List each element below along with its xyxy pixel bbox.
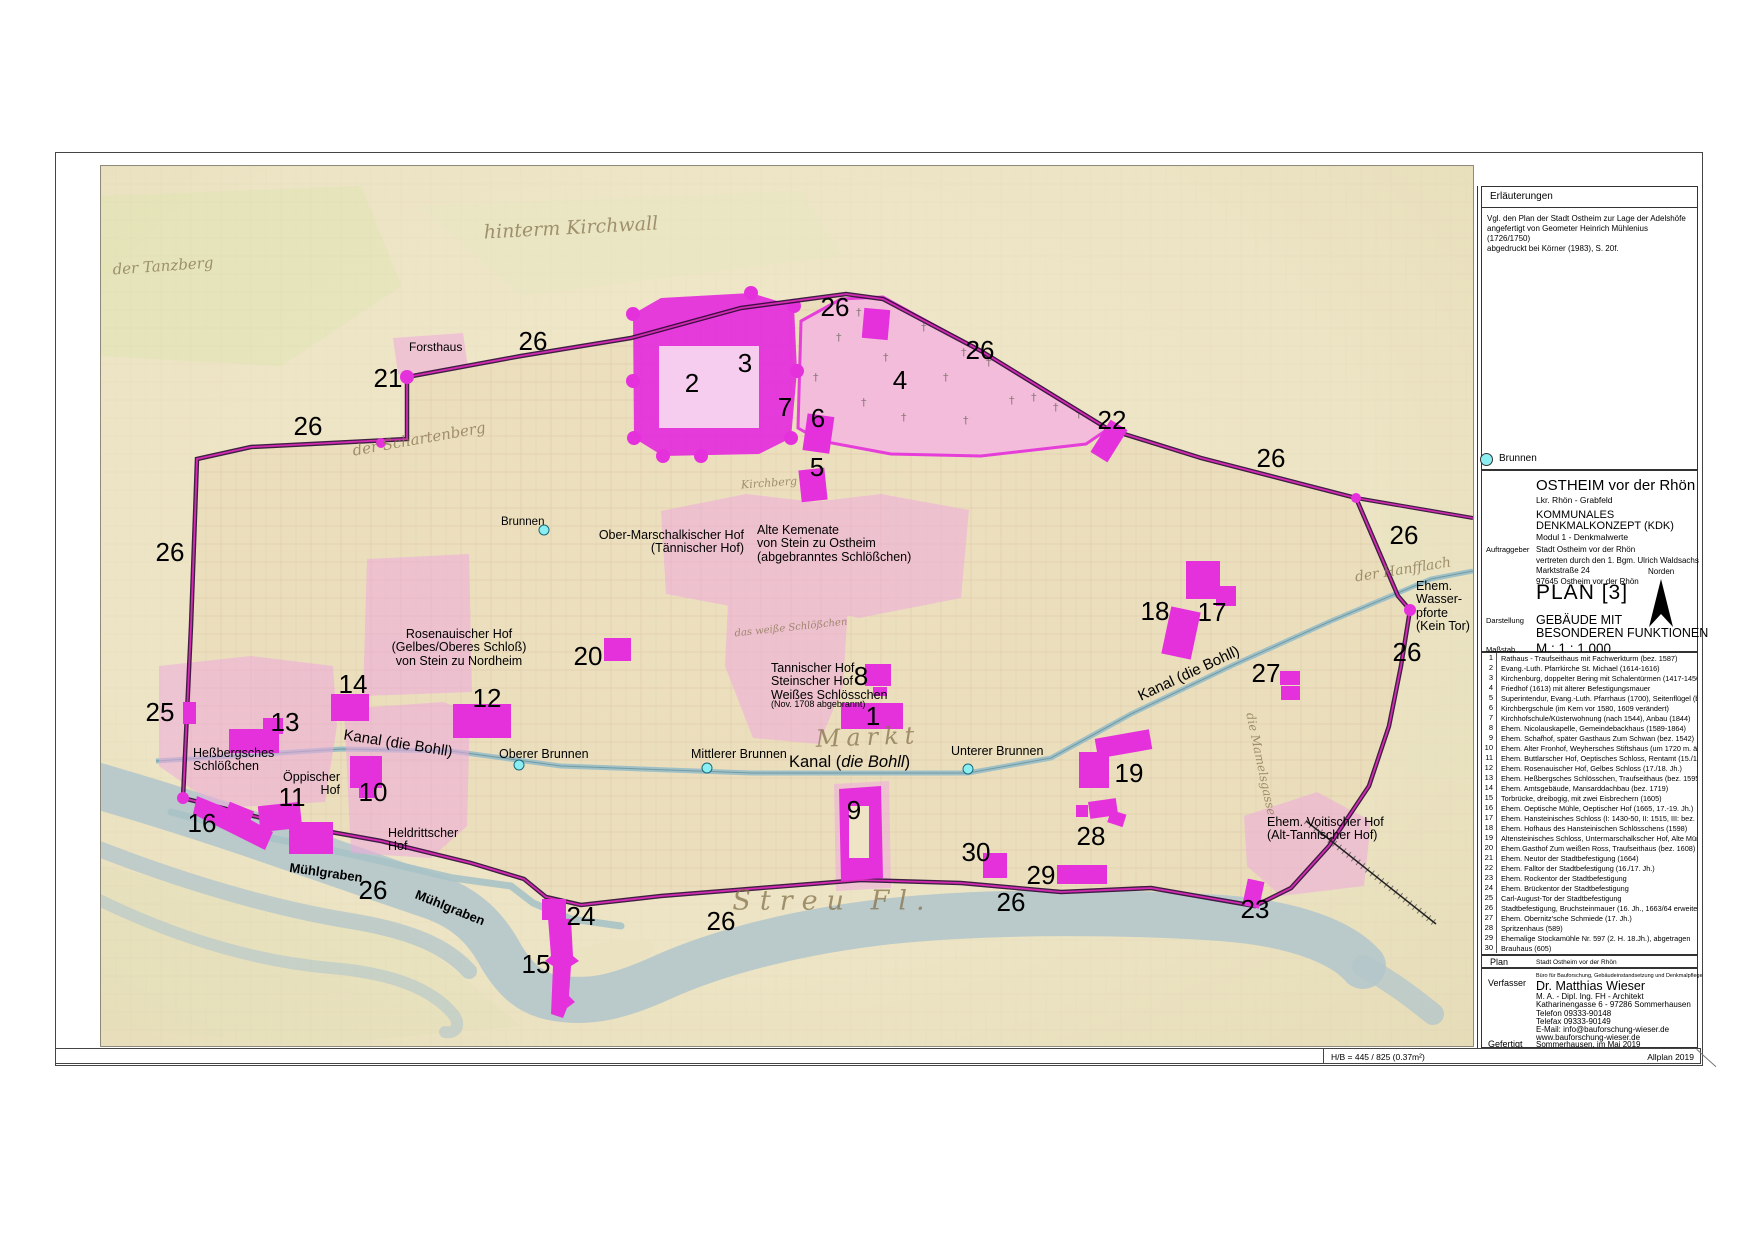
legend-text: Altensteinisches Schloss, Untermarschalk… — [1497, 834, 1698, 843]
legend-number: 17 — [1482, 813, 1497, 823]
hb-note: H/B = 445 / 825 (0.37m²) — [1331, 1052, 1425, 1062]
label-line: Oberer Brunnen — [499, 748, 589, 761]
verfasser-label: Verfasser — [1488, 978, 1526, 988]
legend-text: Ehem. Oeptische Mühle, Oeptischer Hof (1… — [1497, 804, 1693, 813]
bar-divider — [1323, 1049, 1324, 1063]
map-text-label: Ober-Marschalkischer Hof(Tännischer Hof) — [599, 529, 744, 556]
label-line: Heldrittscher — [388, 827, 458, 840]
legend-row: 2Evang.-Luth. Pfarrkirche St. Michael (1… — [1482, 663, 1697, 673]
legend-text: Evang.-Luth. Pfarrkirche St. Michael (16… — [1497, 664, 1660, 673]
label-line: (Alt-Tannischer Hof) — [1267, 829, 1384, 842]
label-line: Mühlgraben — [413, 888, 486, 928]
legend-row: 26Stadtbefestigung, Bruchsteinmauer (16.… — [1482, 903, 1697, 913]
label-segment: Kanal ( — [789, 753, 841, 771]
label-line: pforte — [1416, 607, 1470, 620]
old-script-label: die Mamelsgasse — [1243, 711, 1278, 816]
label-line: (Gelbes/Oberes Schloß) — [392, 641, 527, 654]
map-number-label: 3 — [738, 350, 752, 376]
north-arrow-icon — [1646, 577, 1676, 631]
brunnen-label: Brunnen — [1499, 453, 1537, 464]
darstellung-line1: GEBÄUDE MIT — [1536, 613, 1622, 627]
legend-row: 5Superintendur, Evang.-Luth. Pfarrhaus (… — [1482, 693, 1697, 703]
legend-text: Superintendur, Evang.-Luth. Pfarrhaus (1… — [1497, 694, 1698, 703]
historic-map: ††††††††††††††† — [100, 165, 1474, 1047]
legend-number: 28 — [1482, 923, 1497, 933]
map-number-label: 6 — [811, 405, 825, 431]
legend-number: 10 — [1482, 743, 1497, 753]
legend-row: 12Ehem. Rosenauischer Hof, Gelbes Schlos… — [1482, 763, 1697, 773]
verfasser-lines: M. A. - Dipl. Ing. FH - ArchitektKathari… — [1536, 993, 1691, 1043]
label-line: Brunnen — [501, 516, 544, 528]
legend-row: 4Friedhof (1613) mit älterer Befestigung… — [1482, 683, 1697, 693]
map-number-label: 7 — [778, 394, 792, 420]
label-line: Mittlerer Brunnen — [691, 748, 787, 761]
map-number-label: 5 — [810, 454, 824, 480]
map-number-label: 17 — [1198, 599, 1227, 625]
map-text-label: Ehem.Wasser-pforte(Kein Tor) — [1416, 580, 1470, 633]
text-line: abgedruckt bei Körner (1983), S. 20f. — [1487, 244, 1692, 254]
map-number-label: 12 — [473, 685, 502, 711]
old-script-label: Kirchberg — [741, 475, 798, 492]
legend-number: 29 — [1482, 933, 1497, 943]
legend-number: 30 — [1482, 943, 1497, 953]
label-line: (Tännischer Hof) — [599, 542, 744, 555]
label-segment: die Bohll — [841, 753, 904, 771]
label-line: Alte Kemenate — [757, 524, 911, 537]
legend-row: 25Carl-August-Tor der Stadtbefestigung — [1482, 893, 1697, 903]
legend-text: Ehem. Falltor der Stadtbefestigung (16./… — [1497, 864, 1655, 873]
legend-number: 4 — [1482, 683, 1497, 693]
old-script-label: hinterm Kirchwall — [483, 212, 658, 243]
map-number-label: 16 — [188, 810, 217, 836]
map-number-label: 18 — [1141, 598, 1170, 624]
map-number-label: 25 — [146, 699, 175, 725]
map-number-label: 4 — [893, 367, 907, 393]
legend-number: 23 — [1482, 873, 1497, 883]
legend-row: 15Torbrücke, dreibogig, mit zwei Eisbrec… — [1482, 793, 1697, 803]
label-line: Mühlgraben — [289, 861, 364, 885]
legend-row: 14Ehem. Amtsgebäude, Mansarddachbau (bez… — [1482, 783, 1697, 793]
label-line: Schlößchen — [193, 760, 274, 773]
legend-text: Ehem. Schafhof, später Gasthaus Zum Schw… — [1497, 734, 1694, 743]
legend-text: Ehem. Nicolauskapelle, Gemeindebackhaus … — [1497, 724, 1686, 733]
label-line: Kanal (die Bohll) — [1136, 643, 1242, 704]
norden-label: Norden — [1648, 567, 1674, 576]
legend-number: 6 — [1482, 703, 1497, 713]
label-line: (abgebranntes Schlößchen) — [757, 551, 911, 564]
well-icon — [702, 763, 713, 774]
plan-sheet: ††††††††††††††† — [0, 0, 1755, 1240]
legend-text: Ehem. Hofhaus des Hansteinischen Schlöss… — [1497, 824, 1687, 833]
legend-row: 19Altensteinisches Schloss, Untermarscha… — [1482, 833, 1697, 843]
map-text-label: Rosenauischer Hof(Gelbes/Oberes Schloß)v… — [392, 628, 527, 668]
map-number-label: 26 — [1257, 445, 1286, 471]
plan-row-value: Stadt Ostheim vor der Rhön — [1536, 959, 1617, 966]
legend-text: Ehemalige Stockamühle Nr. 597 (2. H. 18.… — [1497, 934, 1690, 943]
city-title: OSTHEIM vor der Rhön — [1536, 477, 1695, 494]
legend-text: Kirchenburg, doppelter Bering mit Schale… — [1497, 674, 1698, 683]
darstellung-label: Darstellung — [1486, 616, 1524, 625]
map-text-label: Unterer Brunnen — [951, 745, 1043, 758]
label-line: Heßbergsches — [193, 747, 274, 760]
legend-number: 5 — [1482, 693, 1497, 703]
map-number-label: 28 — [1077, 823, 1106, 849]
legend-text: Ehem. Alter Fronhof, Weyhersches Stiftsh… — [1497, 744, 1698, 753]
legend-text: Ehem. Hansteinisches Schloss (I: 1430-50… — [1497, 814, 1698, 823]
verfasser-block: Verfasser Büro für Bauforschung, Gebäude… — [1481, 968, 1698, 1048]
map-text-label: HeldrittscherHof — [388, 827, 458, 854]
map-number-label: 24 — [567, 903, 596, 929]
map-text-label: Mittlerer Brunnen — [691, 748, 787, 761]
map-number-label: 20 — [574, 643, 603, 669]
text-line: vertreten durch den 1. Bgm. Ulrich Walds… — [1536, 556, 1699, 567]
map-text-label: Kanal (die Bohll) — [1136, 643, 1242, 704]
map-number-label: 26 — [966, 337, 995, 363]
legend-text: Ehem. Obernitz'sche Schmiede (17. Jh.) — [1497, 914, 1632, 923]
module: Modul 1 - Denkmalwerte — [1536, 532, 1628, 542]
map-number-label: 26 — [294, 413, 323, 439]
legend-text: Spritzenhaus (589) — [1497, 924, 1563, 933]
map-number-label: 26 — [1393, 639, 1422, 665]
legend-row: 18Ehem. Hofhaus des Hansteinischen Schlö… — [1482, 823, 1697, 833]
map-text-label: Kanal (die Bohll) — [342, 727, 453, 760]
district: Lkr. Rhön - Grabfeld — [1536, 495, 1613, 505]
legend-number: 24 — [1482, 883, 1497, 893]
map-number-label: 8 — [854, 663, 868, 689]
legend-row: 30Brauhaus (605) — [1482, 943, 1697, 953]
map-number-label: 29 — [1027, 862, 1056, 888]
label-line: Wasser- — [1416, 593, 1470, 606]
map-number-label: 14 — [339, 671, 368, 697]
map-text-label: Mühlgraben — [413, 888, 486, 928]
map-number-label: 11 — [279, 784, 306, 810]
label-line: (Kein Tor) — [1416, 620, 1470, 633]
well-icon — [514, 760, 525, 771]
legend-row: 28Spritzenhaus (589) — [1482, 923, 1697, 933]
legend-number: 27 — [1482, 913, 1497, 923]
map-number-label: 13 — [271, 709, 300, 735]
legend-row: 6Kirchbergschule (im Kern vor 1580, 1609… — [1482, 703, 1697, 713]
auftraggeber-label: Auftraggeber — [1486, 545, 1529, 554]
label-line: Rosenauischer Hof — [392, 628, 527, 641]
old-script-label: der Schartenberg — [351, 418, 487, 459]
project-line2: DENKMALKONZEPT (KDK) — [1536, 520, 1674, 532]
text-line: Stadt Ostheim vor der Rhön — [1536, 545, 1699, 556]
legend-text: Brauhaus (605) — [1497, 944, 1551, 953]
label-line: Steinscher Hof — [771, 675, 888, 688]
legend-number: 26 — [1482, 903, 1497, 913]
legend-row: 27Ehem. Obernitz'sche Schmiede (17. Jh.) — [1482, 913, 1697, 923]
well-icon — [1480, 453, 1493, 466]
map-number-label: 26 — [707, 908, 736, 934]
legend-row: 29Ehemalige Stockamühle Nr. 597 (2. H. 1… — [1482, 933, 1697, 943]
bottom-info-bar: H/B = 445 / 825 (0.37m²) Allplan 2019 — [55, 1048, 1701, 1064]
label-line: Tannischer Hof — [771, 662, 888, 675]
text-line: Vgl. den Plan der Stadt Ostheim zur Lage… — [1487, 214, 1692, 224]
legend-number: 22 — [1482, 863, 1497, 873]
map-number-label: 26 — [997, 889, 1026, 915]
map-label-layer: hinterm Kirchwallder Tanzbergder Scharte… — [101, 166, 1473, 1046]
legend-text: Kirchhofschule/Küsterwohnung (nach 1544)… — [1497, 714, 1690, 723]
label-line: Unterer Brunnen — [951, 745, 1043, 758]
map-number-label: 19 — [1115, 760, 1144, 786]
map-number-label: 15 — [522, 951, 551, 977]
map-text-label: Alte Kemenatevon Stein zu Ostheim(abgebr… — [757, 524, 911, 564]
legend-row: 17Ehem. Hansteinisches Schloss (I: 1430-… — [1482, 813, 1697, 823]
legend-row: 10Ehem. Alter Fronhof, Weyhersches Stift… — [1482, 743, 1697, 753]
legend-text: Friedhof (1613) mit älterer Befestigungs… — [1497, 684, 1650, 693]
map-number-label: 9 — [847, 797, 861, 823]
label-line: Kanal (die Bohll) — [342, 727, 453, 760]
legend-text: Ehem. Buttlarscher Hof, Oeptisches Schlo… — [1497, 754, 1698, 763]
erlaeuterungen-box: Erläuterungen Vgl. den Plan der Stadt Os… — [1481, 186, 1698, 470]
map-number-label: 2 — [685, 370, 699, 396]
legend-row: 8Ehem. Nicolauskapelle, Gemeindebackhaus… — [1482, 723, 1697, 733]
legend-table: 1Rathaus - Traufseithaus mit Fachwerktur… — [1481, 652, 1698, 955]
legend-text: Torbrücke, dreibogig, mit zwei Eisbreche… — [1497, 794, 1662, 803]
map-text-label: Ehem. Voitischer Hof(Alt-Tannischer Hof) — [1267, 816, 1384, 843]
map-number-label: 27 — [1252, 660, 1281, 686]
legend-row: 22Ehem. Falltor der Stadtbefestigung (16… — [1482, 863, 1697, 873]
map-number-label: 26 — [1390, 522, 1419, 548]
legend-row: 1Rathaus - Traufseithaus mit Fachwerktur… — [1482, 653, 1697, 663]
legend-row: 13Ehem. Heßbergsches Schlösschen, Traufs… — [1482, 773, 1697, 783]
erlaeuterungen-body: Vgl. den Plan der Stadt Ostheim zur Lage… — [1482, 208, 1697, 260]
legend-text: Ehem. Neutor der Stadtbefestigung (1664) — [1497, 854, 1639, 863]
label-line: Hof — [388, 840, 458, 853]
legend-number: 8 — [1482, 723, 1497, 733]
map-text-label: Oberer Brunnen — [499, 748, 589, 761]
legend-text: Ehem. Heßbergsches Schlösschen, Traufsei… — [1497, 774, 1698, 783]
legend-text: Ehem. Rockentor der Stadtbefestigung — [1497, 874, 1627, 883]
map-number-label: 30 — [962, 839, 991, 865]
legend-row: 9Ehem. Schafhof, später Gasthaus Zum Sch… — [1482, 733, 1697, 743]
text-line: angefertigt von Geometer Heinrich Mühlen… — [1487, 224, 1692, 244]
label-line: Ehem. — [1416, 580, 1470, 593]
plan-row-label: Plan — [1490, 957, 1508, 967]
map-number-label: 1 — [866, 703, 880, 729]
map-text-label: Brunnen — [501, 516, 544, 528]
legend-number: 18 — [1482, 823, 1497, 833]
legend-number: 11 — [1482, 753, 1497, 763]
legend-number: 15 — [1482, 793, 1497, 803]
map-number-label: 26 — [519, 328, 548, 354]
legend-number: 12 — [1482, 763, 1497, 773]
label-line: Ehem. Voitischer Hof — [1267, 816, 1384, 829]
map-text-label: Kanal (die Bohll) — [789, 754, 910, 771]
map-text-label: Forsthaus — [409, 341, 462, 354]
legend-row: 21Ehem. Neutor der Stadtbefestigung (166… — [1482, 853, 1697, 863]
darstellung-line2: BESONDEREN FUNKTIONEN — [1536, 626, 1708, 640]
map-text-label: HeßbergschesSchlößchen — [193, 747, 274, 774]
old-script-label: das weiße Schlößchen — [734, 617, 848, 640]
map-text-label: Mühlgraben — [289, 861, 364, 885]
label-line: Forsthaus — [409, 341, 462, 354]
legend-text: Ehem. Rosenauischer Hof, Gelbes Schloss … — [1497, 764, 1682, 773]
map-text-label: (Nov. 1708 abgebrannt) — [771, 700, 865, 710]
title-block: OSTHEIM vor der Rhön Lkr. Rhön - Grabfel… — [1481, 470, 1698, 652]
text-line: Marktstraße 24 — [1536, 566, 1699, 577]
map-number-label: 26 — [821, 294, 850, 320]
map-number-label: 26 — [359, 877, 388, 903]
legend-row: 7Kirchhofschule/Küsterwohnung (nach 1544… — [1482, 713, 1697, 723]
panel-divider — [1477, 186, 1478, 1048]
map-number-label: 10 — [359, 779, 388, 805]
legend-brunnen: Brunnen — [1481, 449, 1698, 470]
legend-text: Ehem. Brückentor der Stadtbefestigung — [1497, 884, 1629, 893]
legend-text: Ehem.Gasthof Zum weißen Ross, Traufseith… — [1497, 844, 1695, 853]
legend-text: Kirchbergschule (im Kern vor 1580, 1609 … — [1497, 704, 1669, 713]
legend-text: Rathaus - Traufseithaus mit Fachwerkturm… — [1497, 654, 1677, 663]
legend-row: 3Kirchenburg, doppelter Bering mit Schal… — [1482, 673, 1697, 683]
plan-row: Plan Stadt Ostheim vor der Rhön — [1481, 955, 1698, 968]
legend-number: 20 — [1482, 843, 1497, 853]
plan-number: PLAN [3] — [1536, 581, 1628, 605]
label-line: von Stein zu Nordheim — [392, 655, 527, 668]
legend-number: 21 — [1482, 853, 1497, 863]
legend-number: 13 — [1482, 773, 1497, 783]
legend-number: 25 — [1482, 893, 1497, 903]
label-line: (Nov. 1708 abgebrannt) — [771, 700, 865, 710]
label-line: Ober-Marschalkischer Hof — [599, 529, 744, 542]
legend-number: 14 — [1482, 783, 1497, 793]
map-number-label: 26 — [156, 539, 185, 565]
old-script-label: der Tanzberg — [112, 253, 214, 278]
legend-row: 11Ehem. Buttlarscher Hof, Oeptisches Sch… — [1482, 753, 1697, 763]
well-icon — [539, 525, 550, 536]
legend-text: Stadtbefestigung, Bruchsteinmauer (16. J… — [1497, 904, 1698, 913]
erlaeuterungen-title: Erläuterungen — [1482, 187, 1697, 208]
legend-row: 24Ehem. Brückentor der Stadtbefestigung — [1482, 883, 1697, 893]
software-note: Allplan 2019 — [1647, 1052, 1694, 1062]
map-number-label: 23 — [1241, 896, 1270, 922]
legend-number: 19 — [1482, 833, 1497, 843]
old-script-label: Streu Fl. — [732, 886, 933, 917]
map-text-label: Tannischer HofSteinscher HofWeißes Schlö… — [771, 662, 888, 702]
legend-number: 9 — [1482, 733, 1497, 743]
legend-text: Ehem. Amtsgebäude, Mansarddachbau (bez. … — [1497, 784, 1668, 793]
legend-row: 16Ehem. Oeptische Mühle, Oeptischer Hof … — [1482, 803, 1697, 813]
legend-number: 3 — [1482, 673, 1497, 683]
legend-number: 1 — [1482, 653, 1497, 663]
map-number-label: 21 — [374, 365, 403, 391]
legend-row: 23Ehem. Rockentor der Stadtbefestigung — [1482, 873, 1697, 883]
label-segment: ) — [905, 753, 911, 771]
legend-number: 7 — [1482, 713, 1497, 723]
map-number-label: 22 — [1098, 407, 1127, 433]
well-icon — [963, 764, 974, 775]
legend-number: 2 — [1482, 663, 1497, 673]
legend-row: 20Ehem.Gasthof Zum weißen Ross, Traufsei… — [1482, 843, 1697, 853]
verfasser-name: Dr. Matthias Wieser — [1536, 979, 1645, 993]
legend-number: 16 — [1482, 803, 1497, 813]
legend-text: Carl-August-Tor der Stadtbefestigung — [1497, 894, 1621, 903]
label-line: von Stein zu Ostheim — [757, 537, 911, 550]
